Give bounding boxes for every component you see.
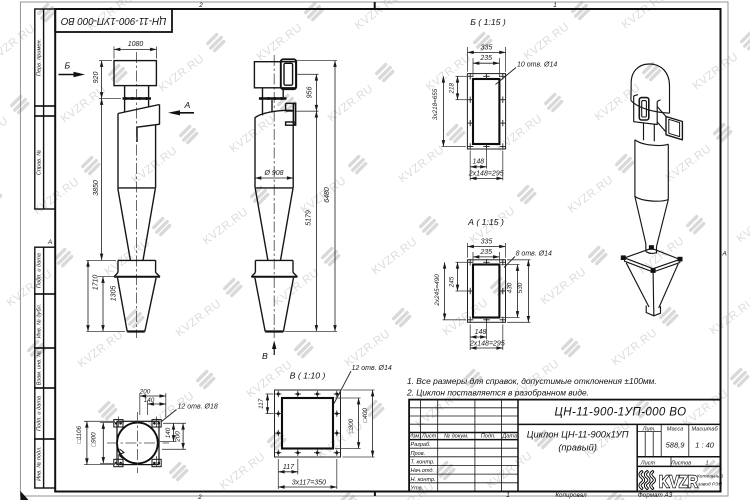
svg-text:235: 235: [479, 55, 492, 62]
svg-text:2. Циклон поставляется в разоб: 2. Циклон поставляется в разобранном вид…: [406, 388, 589, 398]
svg-text:10 отв. Ø14: 10 отв. Ø14: [517, 62, 557, 69]
svg-text:117: 117: [283, 464, 295, 471]
svg-text:148: 148: [472, 159, 484, 166]
svg-text:Дата: Дата: [501, 433, 517, 439]
svg-text:А ( 1:15 ): А ( 1:15 ): [467, 217, 504, 227]
svg-text:218: 218: [448, 82, 455, 94]
svg-text:Инв. № дубл.: Инв. № дубл.: [37, 304, 43, 338]
svg-text:завод РЭП: завод РЭП: [697, 482, 722, 488]
svg-text:№ докум.: № докум.: [444, 433, 469, 439]
svg-text:920: 920: [93, 72, 100, 84]
svg-text:235: 235: [479, 249, 492, 256]
svg-text:956: 956: [307, 87, 314, 99]
svg-text:Формат А3: Формат А3: [638, 492, 673, 499]
svg-text:140: 140: [144, 397, 155, 404]
svg-text:148: 148: [475, 329, 487, 336]
svg-text:Лист: Лист: [421, 433, 437, 439]
svg-text:200: 200: [175, 431, 182, 443]
svg-text:12 отв. Ø14: 12 отв. Ø14: [352, 365, 392, 372]
svg-text:117: 117: [258, 398, 265, 409]
svg-text:Копировал: Копировал: [555, 492, 587, 499]
svg-text:Перв. примен.: Перв. примен.: [37, 39, 43, 76]
svg-text:2: 2: [198, 2, 203, 9]
svg-text:Масштаб: Масштаб: [692, 427, 719, 433]
svg-text:1: 1: [705, 460, 708, 466]
svg-text:□400: □400: [362, 408, 369, 423]
svg-text:Справ. №: Справ. №: [37, 150, 43, 175]
svg-text:В ( 1:10 ): В ( 1:10 ): [290, 371, 326, 381]
svg-text:Инв. № подл.: Инв. № подл.: [37, 446, 43, 481]
svg-text:588,9: 588,9: [666, 441, 686, 450]
svg-text:2x245=490: 2x245=490: [434, 274, 441, 307]
svg-text:А: А: [721, 251, 726, 258]
svg-text:Нач.отд.: Нач.отд.: [411, 468, 435, 474]
svg-text:335: 335: [481, 44, 493, 51]
svg-text:В: В: [262, 351, 268, 361]
svg-text:□1106: □1106: [76, 426, 83, 444]
svg-text:12 отв. Ø18: 12 отв. Ø18: [178, 404, 218, 411]
svg-text:Масса: Масса: [667, 427, 684, 433]
svg-text:2x148=295: 2x148=295: [468, 171, 504, 178]
svg-text:KVZR: KVZR: [659, 472, 698, 492]
svg-text:Котельный: Котельный: [697, 473, 723, 480]
svg-text:8 отв. Ø14: 8 отв. Ø14: [516, 251, 552, 258]
svg-text:1305: 1305: [111, 286, 118, 302]
svg-text:530: 530: [517, 282, 524, 293]
svg-text:245: 245: [449, 276, 456, 288]
svg-text:Взам. инв. №: Взам. инв. №: [37, 351, 43, 386]
svg-text:2x148=295: 2x148=295: [469, 341, 505, 348]
svg-text:Пров.: Пров.: [411, 451, 426, 457]
svg-text:Н. контр.: Н. контр.: [411, 477, 436, 483]
svg-text:5179: 5179: [306, 210, 313, 226]
svg-text:Циклон ЦН-11-900х1УП: Циклон ЦН-11-900х1УП: [527, 430, 629, 440]
svg-text:ЦН-11-900-1УП-000 ВО: ЦН-11-900-1УП-000 ВО: [555, 407, 687, 419]
svg-text:2: 2: [197, 494, 202, 500]
svg-text:ЦН-11-900-1УП-000 ВО: ЦН-11-900-1УП-000 ВО: [60, 15, 166, 26]
svg-text:А: А: [184, 100, 191, 110]
svg-text:3x117=350: 3x117=350: [292, 479, 326, 486]
svg-text:1080: 1080: [128, 41, 144, 48]
svg-text:Б ( 1:15 ): Б ( 1:15 ): [470, 17, 506, 27]
svg-text:Подп. и дата: Подп. и дата: [37, 396, 43, 431]
svg-text:Подп. и дата: Подп. и дата: [37, 253, 43, 288]
svg-text:3x218=655: 3x218=655: [432, 88, 439, 120]
svg-text:Разраб.: Разраб.: [411, 442, 431, 448]
svg-text:(правый): (правый): [558, 443, 597, 453]
svg-text:Листов: Листов: [670, 460, 691, 466]
svg-text:Лит.: Лит.: [642, 427, 656, 433]
svg-text:А: А: [47, 239, 52, 246]
svg-text:430: 430: [507, 282, 514, 293]
svg-text:335: 335: [481, 239, 493, 246]
svg-text:Лист: Лист: [640, 460, 656, 466]
svg-text:1: 1: [553, 2, 557, 9]
svg-text:Б: Б: [65, 61, 71, 71]
svg-text:Подп.: Подп.: [481, 433, 496, 439]
svg-text:Т. контр.: Т. контр.: [411, 459, 435, 465]
svg-text:200: 200: [139, 389, 151, 396]
svg-text:□900: □900: [91, 432, 98, 447]
svg-text:3850: 3850: [93, 180, 100, 196]
svg-text:Утв.: Утв.: [410, 485, 424, 491]
svg-text:Ø 908: Ø 908: [263, 170, 283, 177]
svg-text:□300: □300: [348, 418, 355, 433]
svg-text:1 : 40: 1 : 40: [695, 441, 715, 450]
svg-text:140: 140: [165, 427, 172, 438]
svg-text:1. Все размеры для справок, до: 1. Все размеры для справок, допустимые о…: [407, 376, 657, 386]
svg-text:1: 1: [506, 492, 510, 499]
svg-text:Изм.: Изм.: [409, 433, 421, 439]
svg-text:6480: 6480: [324, 187, 331, 203]
